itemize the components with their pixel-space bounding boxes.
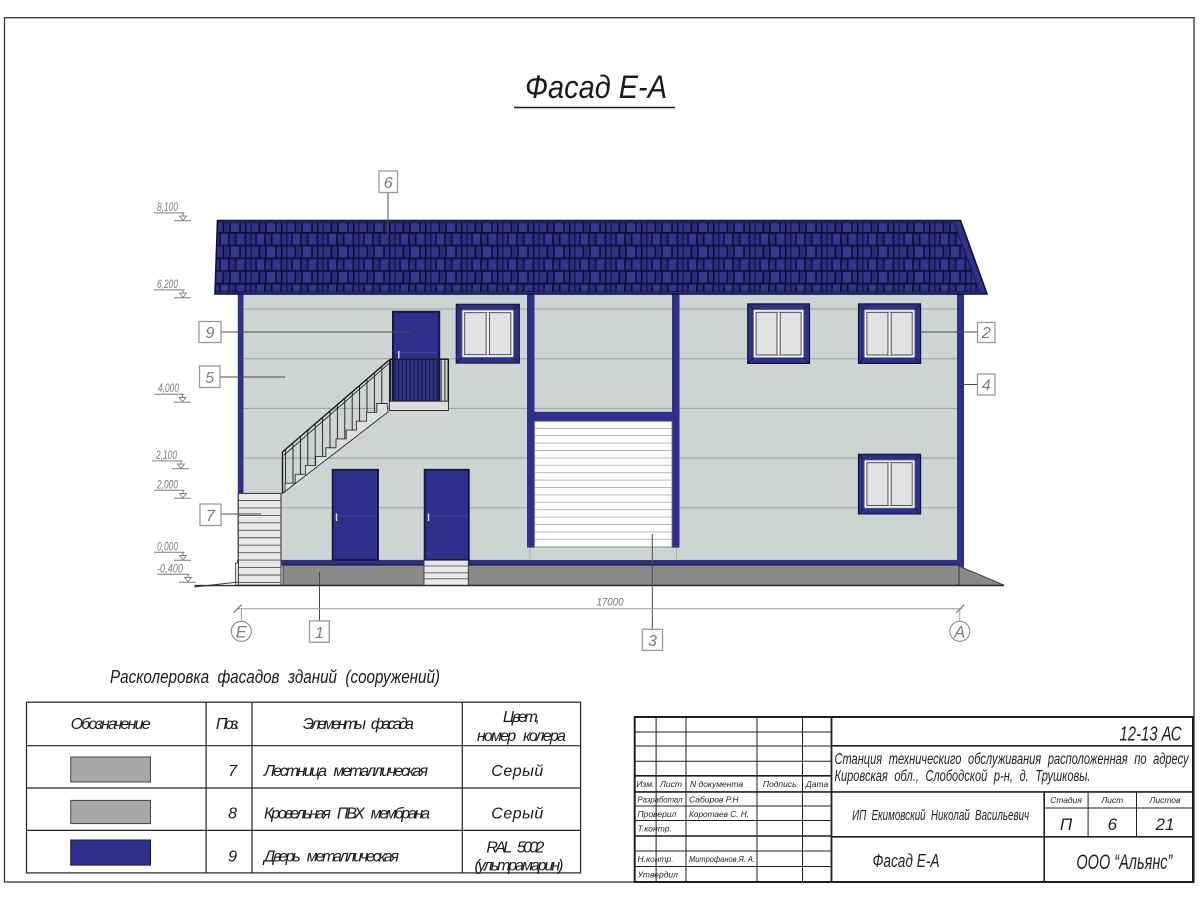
svg-text:Обозначение: Обозначение [71,716,151,733]
svg-text:Коротаев С. Н.: Коротаев С. Н. [689,809,749,819]
svg-text:Фасад Е-А: Фасад Е-А [525,69,667,105]
svg-text:Кировская обл., Слободской р-н: Кировская обл., Слободской р-н, д. Трушк… [835,768,1091,785]
svg-text:9: 9 [206,325,215,342]
svg-text:Лестница металлическая: Лестница металлическая [263,763,428,780]
svg-text:Митрофанов Я. А.: Митрофанов Я. А. [689,854,755,864]
svg-text:Листов: Листов [1149,795,1182,805]
svg-text:Сабиров Р.Н: Сабиров Р.Н [689,795,739,805]
svg-text:5: 5 [205,370,214,387]
svg-text:4: 4 [982,378,991,395]
svg-text:-0,400: -0,400 [157,563,183,575]
svg-text:8,100: 8,100 [157,202,178,214]
svg-text:А: А [953,623,965,641]
svg-text:21: 21 [1155,815,1175,834]
svg-text:2: 2 [981,325,991,342]
svg-text:2,000: 2,000 [156,479,178,491]
svg-text:12-13 АС: 12-13 АС [1120,724,1182,746]
svg-text:Разработал: Разработал [638,795,683,805]
svg-text:Кровельная ПВХ мембрана: Кровельная ПВХ мембрана [264,806,430,823]
svg-text:6: 6 [384,175,393,192]
svg-text:17000: 17000 [597,597,625,609]
svg-text:Дата: Дата [805,779,829,789]
svg-text:9: 9 [228,849,237,866]
svg-text:Станция техническиго обслужива: Станция техническиго обслуживания распол… [835,751,1190,768]
svg-text:П: П [1060,815,1073,834]
svg-text:Утвердил: Утвердил [637,870,679,880]
svg-text:7: 7 [206,508,216,525]
svg-text:номер колера: номер колера [477,728,566,745]
svg-text:Е: Е [236,623,248,641]
svg-text:Элементы фасада: Элементы фасада [303,716,414,733]
svg-text:Стадия: Стадия [1050,795,1082,805]
svg-text:4,000: 4,000 [158,383,179,395]
svg-text:2,100: 2,100 [155,450,177,462]
svg-text:Фасад Е-А: Фасад Е-А [873,851,940,871]
svg-text:7: 7 [228,763,238,780]
svg-text:Расколеровка фасадов зданий (с: Расколеровка фасадов зданий (сооружений) [110,667,440,687]
svg-text:Серый: Серый [491,806,543,823]
svg-text:1: 1 [315,625,324,642]
svg-text:Лист: Лист [1100,795,1123,805]
svg-text:RAL 5002: RAL 5002 [486,840,544,857]
svg-text:N документа: N документа [690,779,743,789]
svg-text:6: 6 [1108,815,1118,834]
svg-text:Дверь металлическая: Дверь металлическая [262,849,399,866]
svg-text:Поз.: Поз. [216,716,240,733]
svg-text:8: 8 [228,806,237,823]
svg-text:ИП Екимовский Николай Васильев: ИП Екимовский Николай Васильевич [852,807,1029,824]
svg-text:Н.контр.: Н.контр. [638,854,674,864]
svg-text:0,000: 0,000 [157,541,178,553]
svg-text:Серый: Серый [491,763,543,780]
svg-text:3: 3 [648,633,657,650]
svg-text:Изм.: Изм. [636,779,654,789]
svg-text:ООО “Альянс”: ООО “Альянс” [1076,851,1173,874]
svg-text:(ультрамарин): (ультрамарин) [475,858,564,875]
svg-text:Лист: Лист [659,779,682,789]
svg-text:Цвет,: Цвет, [503,709,540,726]
svg-text:6,200: 6,200 [157,279,178,291]
svg-text:Проверил: Проверил [638,809,677,819]
svg-text:Т.контр.: Т.контр. [638,824,672,834]
svg-text:Подпись: Подпись [763,779,797,789]
